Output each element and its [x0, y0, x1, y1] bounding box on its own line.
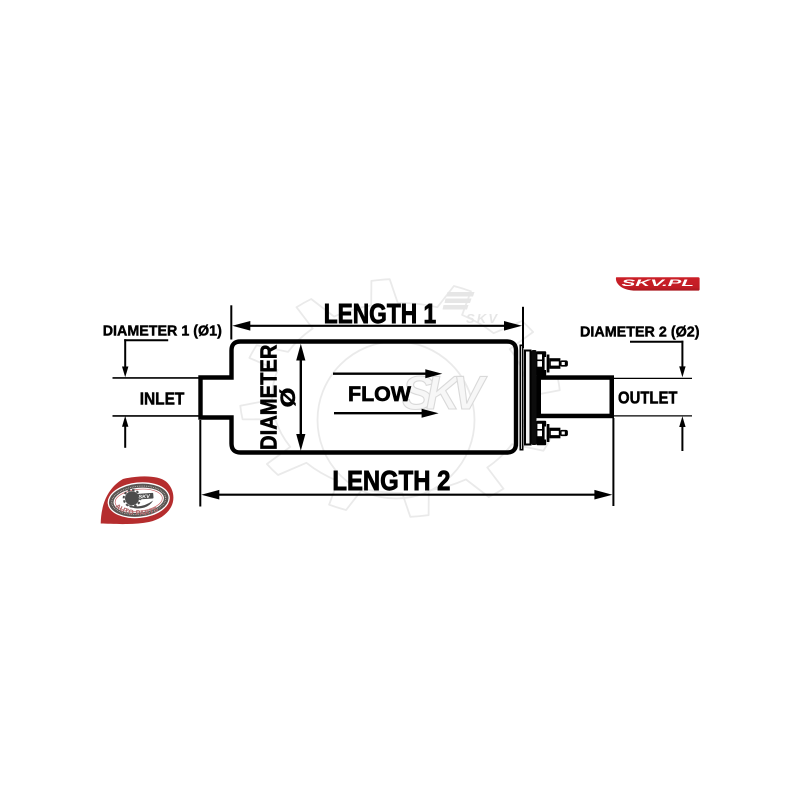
svg-text:SKV: SKV [138, 494, 151, 501]
svg-text:LENGTH 2: LENGTH 2 [332, 465, 450, 496]
svg-text:SKV.PL: SKV.PL [622, 278, 695, 288]
svg-text:DIAMETER 2 (Ø2): DIAMETER 2 (Ø2) [580, 324, 700, 340]
svg-text:LENGTH 1: LENGTH 1 [324, 298, 437, 329]
svg-text:DIAMETER 1 (Ø1): DIAMETER 1 (Ø1) [103, 324, 222, 340]
svg-text:OUTLET: OUTLET [618, 388, 678, 408]
svg-text:FLOW: FLOW [348, 382, 412, 406]
svg-text:Ø: Ø [276, 388, 299, 408]
svg-text:SKV: SKV [466, 311, 498, 326]
svg-text:INLET: INLET [140, 388, 185, 408]
